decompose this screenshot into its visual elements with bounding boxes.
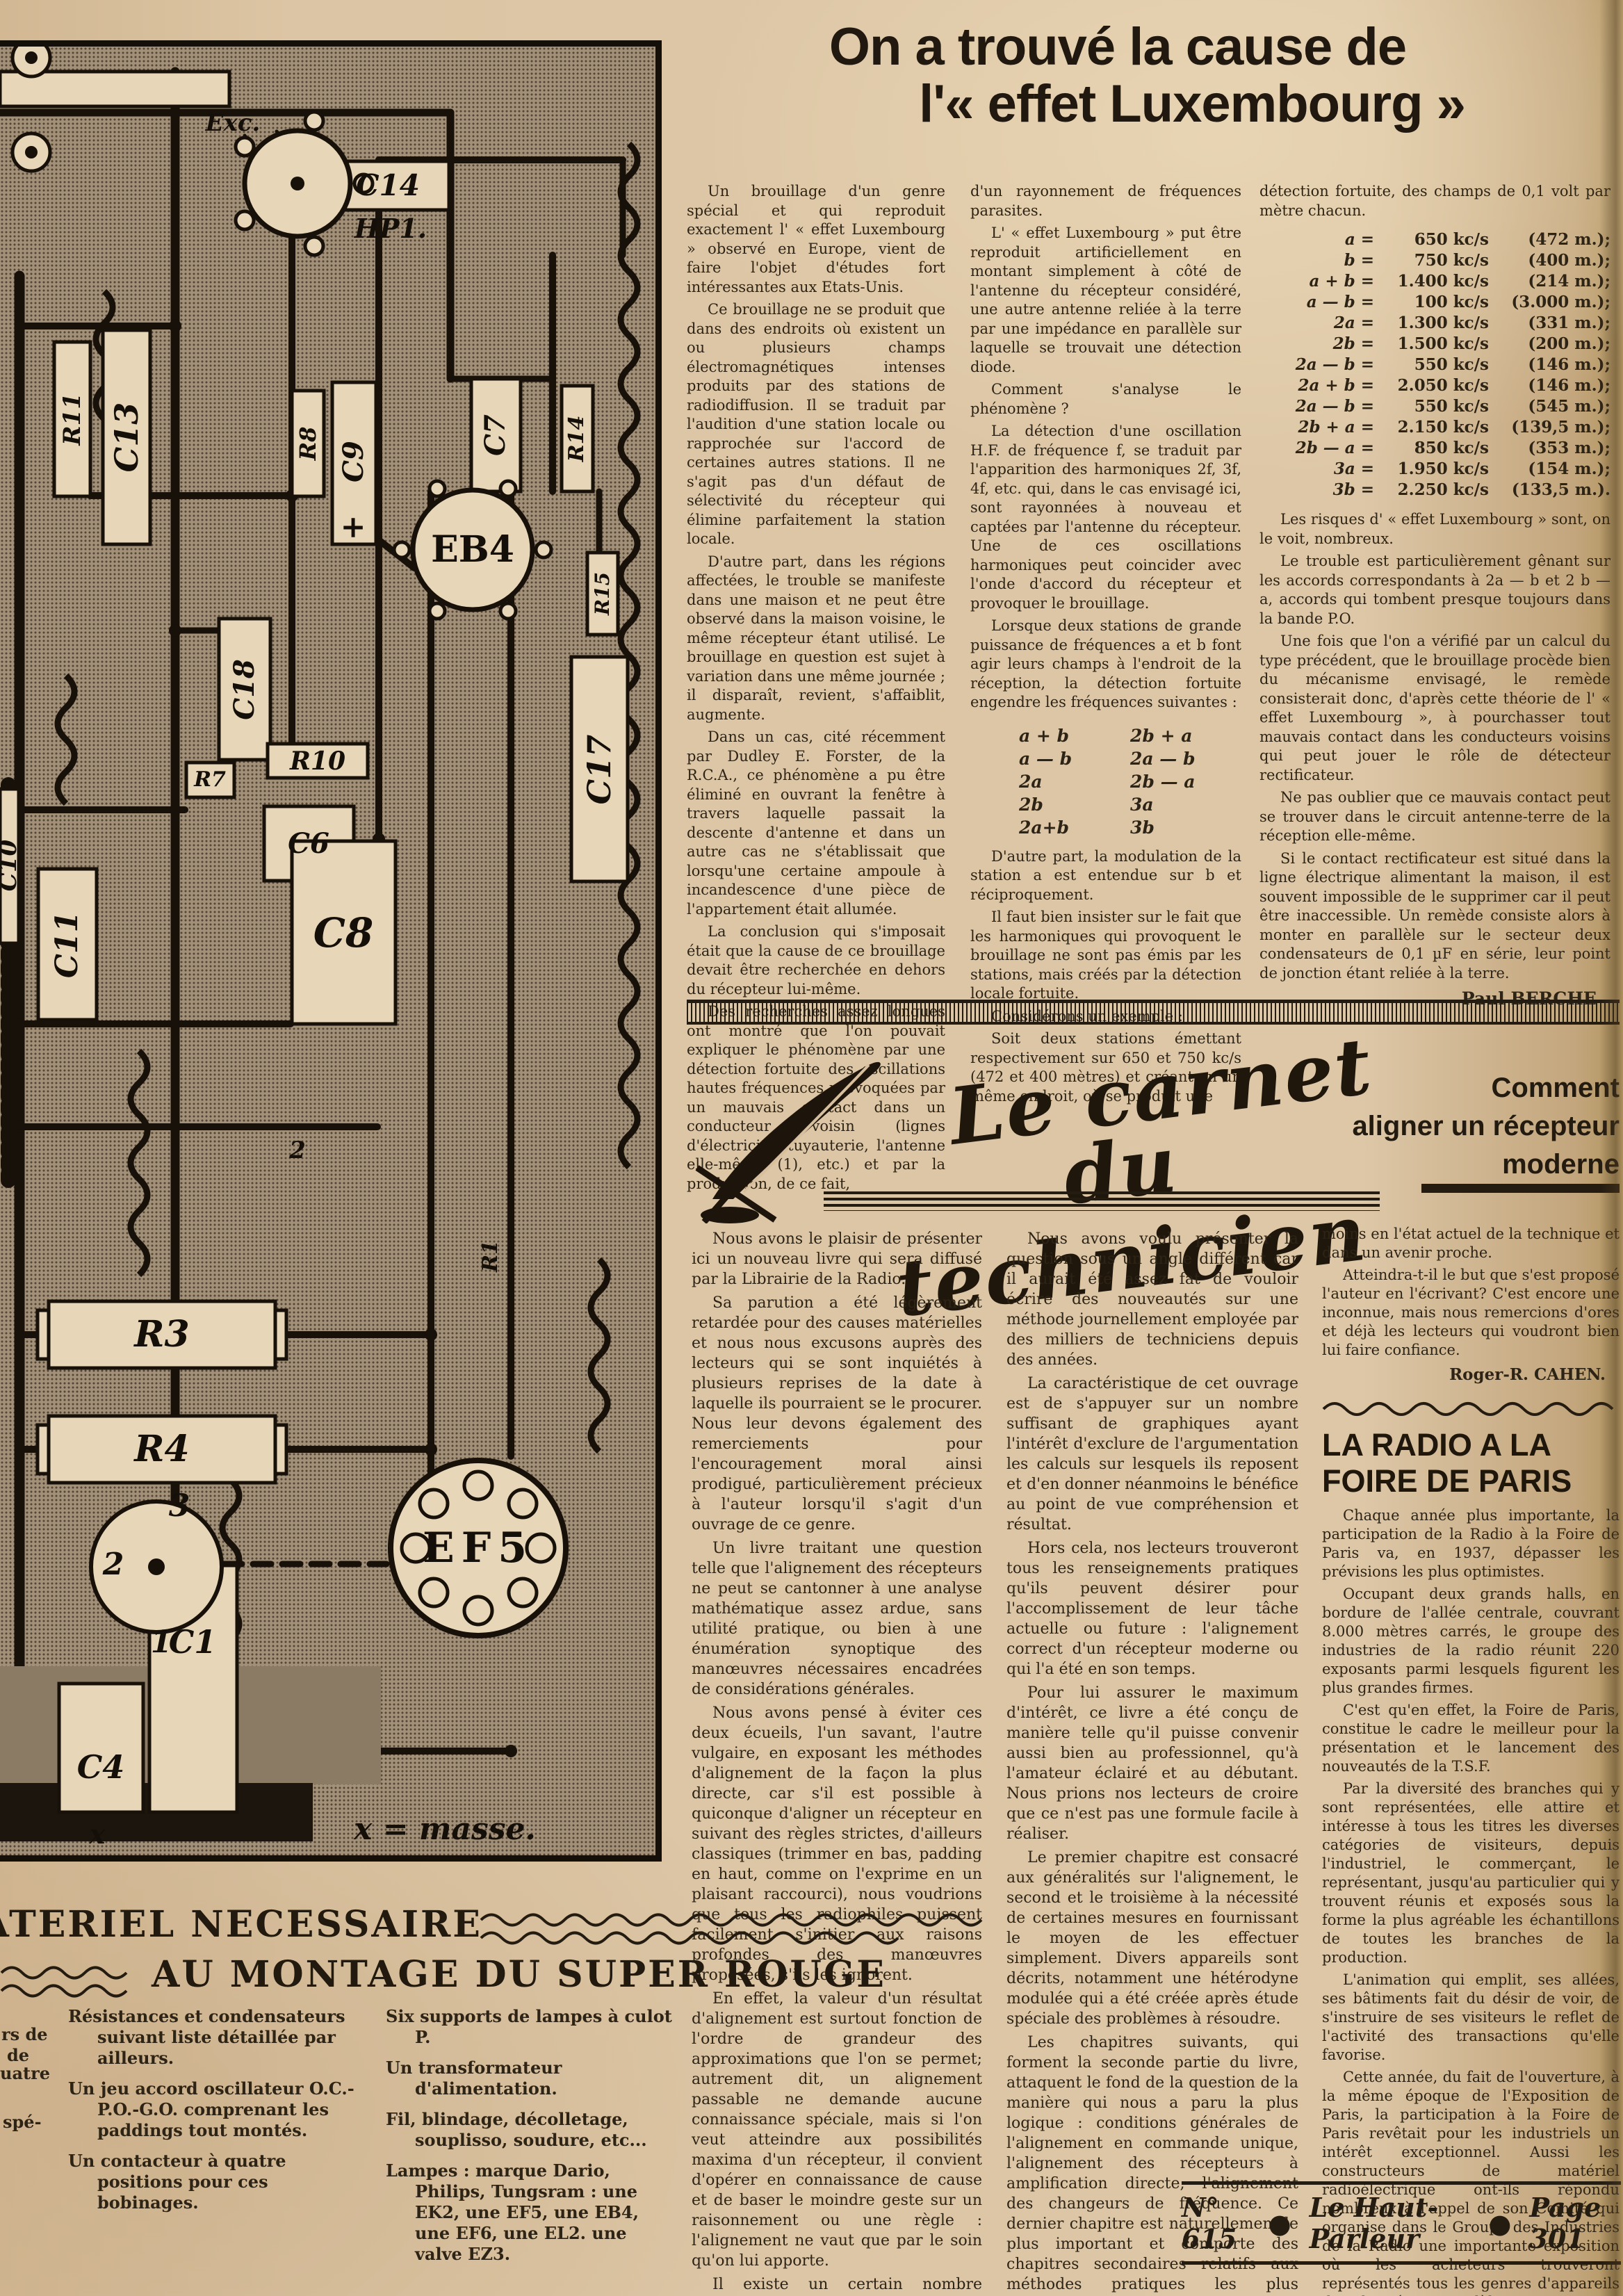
frequency-meters: (3.000 m.);	[1489, 292, 1610, 313]
subtitle-bar	[1421, 1184, 1620, 1193]
frequency-lhs: 2b + a =	[1270, 417, 1374, 438]
frequency-meters: (472 m.);	[1489, 229, 1610, 250]
materiel-item: Fil, blindage, décolletage, souplisso, s…	[386, 2109, 672, 2151]
frequency-value: 850 kc/s	[1374, 438, 1489, 459]
frequency-value: 1.300 kc/s	[1374, 313, 1489, 334]
label-r15: R15	[593, 572, 612, 615]
label-r11: R11	[60, 393, 84, 446]
issue-number: N° 615	[1182, 2192, 1250, 2254]
margin-fragment: spé-	[3, 2112, 42, 2132]
label-c6: C6	[288, 830, 329, 858]
frequency-row: 2a = 1.300 kc/s (331 m.);	[1259, 313, 1610, 334]
label-c13: C13	[111, 402, 142, 473]
frequency-lhs: a =	[1270, 229, 1374, 250]
label-c14: C14	[356, 171, 420, 200]
frequency-meters: (545 m.);	[1489, 396, 1610, 417]
formula: 2b — a	[1130, 770, 1241, 793]
label-c9: C9	[340, 441, 368, 482]
diagram-caption: x = masse.	[354, 1814, 536, 1845]
label-r4: R4	[134, 1431, 189, 1467]
lux-column-3-top: détection fortuite, des champs de 0,1 vo…	[1259, 182, 1610, 220]
paragraph: Ce brouillage ne se produit que dans des…	[687, 300, 945, 549]
paragraph: Le trouble est particulièrement gênant s…	[1259, 552, 1610, 628]
wavy-divider	[480, 1910, 1004, 1946]
subtitle-line: Comment	[1324, 1069, 1620, 1107]
frequency-meters: (146 m.);	[1489, 375, 1610, 396]
label-c11: C11	[52, 911, 83, 978]
label-c18: C18	[231, 659, 259, 720]
label-eb4: EB4	[431, 532, 514, 568]
bullet-icon: ●	[1488, 2208, 1511, 2239]
label-r10: R10	[290, 749, 345, 774]
newspaper-page: Exc. C14 HP1. R11 C13 R8 C9 + C7 R14 EB4…	[0, 0, 1623, 2296]
frequency-row: 3b = 2.250 kc/s (133,5 m.).	[1259, 480, 1610, 500]
frequency-row: 2b + a = 2.150 kc/s (139,5 m.);	[1259, 417, 1610, 438]
formula: 3a	[1130, 793, 1241, 816]
frequency-lhs: 3b =	[1270, 480, 1374, 500]
paragraph: Hors cela, nos lecteurs trouveront tous …	[1006, 1538, 1298, 1679]
paragraph: Nous avons le plaisir de présenter ici u…	[692, 1229, 982, 1289]
frequency-lhs: a + b =	[1270, 271, 1374, 292]
lux-column-2: d'un rayonnement de fréquences parasites…	[970, 182, 1241, 1109]
formula: 2b	[1019, 793, 1130, 816]
frequency-lhs: 2a =	[1270, 313, 1374, 334]
bullet-icon: ●	[1268, 2208, 1291, 2239]
frequency-meters: (214 m.);	[1489, 271, 1610, 292]
carnet-column-2: Nous avons voulu présenter la question s…	[1006, 1229, 1298, 2296]
label-ef5: EF5	[423, 1527, 534, 1569]
frequency-row: a = 650 kc/s (472 m.);	[1259, 229, 1610, 250]
frequency-lhs: 2a — b =	[1270, 396, 1374, 417]
frequency-value: 550 kc/s	[1374, 355, 1489, 375]
section-divider	[687, 1000, 1620, 1025]
paragraph: Occupant deux grands halls, en bordure d…	[1322, 1585, 1620, 1697]
frequency-lhs: a — b =	[1270, 292, 1374, 313]
lux-headline-line1: On a trouvé la cause de	[687, 19, 1549, 75]
frequency-row: 2b = 1.500 kc/s (200 m.);	[1259, 334, 1610, 355]
label-plus: +	[341, 512, 366, 543]
frequency-value: 1.950 kc/s	[1374, 459, 1489, 480]
carnet-signature: Roger-R. CAHEN.	[1322, 1365, 1620, 1384]
formula: 3b	[1130, 816, 1241, 839]
frequency-meters: (353 m.);	[1489, 438, 1610, 459]
materiel-item: Lampes : marque Dario, Philips, Tungsram…	[386, 2160, 672, 2265]
paragraph: Un livre traitant une question telle que…	[692, 1538, 982, 1700]
formula: 2a+b	[1019, 816, 1130, 839]
materiel-item: Un jeu accord oscillateur O.C.-P.O.-G.O.…	[68, 2078, 366, 2141]
wiring-diagram: Exc. C14 HP1. R11 C13 R8 C9 + C7 R14 EB4…	[0, 40, 662, 1862]
lux-headline-line2: l'« effet Luxembourg »	[761, 76, 1623, 132]
label-pin2: 2	[103, 1549, 124, 1580]
frequency-lhs: 2a + b =	[1270, 375, 1374, 396]
frequency-value: 550 kc/s	[1374, 396, 1489, 417]
frequency-row: b = 750 kc/s (400 m.);	[1259, 250, 1610, 271]
materiel-title-line1: MATERIEL NECESSAIRE	[0, 1903, 482, 1946]
paragraph: Le premier chapitre est consacré aux gén…	[1006, 1848, 1298, 2029]
foire-body: Chaque année plus importante, la partici…	[1322, 1506, 1620, 2296]
paragraph: d'un rayonnement de fréquences parasites…	[970, 182, 1241, 220]
label-c10: C10	[0, 840, 20, 891]
lux-column-3: détection fortuite, des champs de 0,1 vo…	[1259, 182, 1610, 1009]
paragraph: Chaque année plus importante, la partici…	[1322, 1506, 1620, 1581]
frequency-meters: (154 m.);	[1489, 459, 1610, 480]
label-c17: C17	[583, 735, 615, 805]
page-edge-shadow	[1599, 0, 1623, 2296]
carnet-subtitle: Commentaligner un récepteurmoderne	[1324, 1069, 1620, 1184]
subtitle-line: aligner un récepteur	[1324, 1107, 1620, 1146]
magazine-name: Le Haut-Parleur	[1310, 2192, 1471, 2254]
formula: 2b + a	[1130, 724, 1241, 747]
frequency-row: a + b = 1.400 kc/s (214 m.);	[1259, 271, 1610, 292]
materiel-right-column: Six supports de lampes à culot P.Un tran…	[386, 2006, 672, 2274]
carnet-striped-bar	[824, 1191, 1380, 1211]
page-footer: N° 615 ● Le Haut-Parleur ● Page 301	[1182, 2181, 1621, 2265]
margin-fragment: rs de	[1, 2024, 48, 2044]
paragraph: Nous avons voulu présenter la question s…	[1006, 1229, 1298, 1370]
frequency-value: 2.050 kc/s	[1374, 375, 1489, 396]
wavy-divider	[0, 1963, 142, 1998]
paragraph: Dans un cas, cité récemment par Dudley E…	[687, 728, 945, 919]
paragraph: Une fois que l'on a vérifié par un calcu…	[1259, 632, 1610, 785]
materiel-item: Un contacteur à quatre positions pour ce…	[68, 2151, 366, 2213]
frequency-row: 2a + b = 2.050 kc/s (146 m.);	[1259, 375, 1610, 396]
paragraph: La détection d'une oscillation H.F. de f…	[970, 422, 1241, 613]
formula-list-left: a + ba — b2a2b2a+b	[1019, 724, 1130, 839]
margin-fragment: uatre	[0, 2063, 50, 2083]
carnet-column-3: moins en l'état actuel de la technique e…	[1322, 1225, 1620, 1360]
frequency-lhs: 3a =	[1270, 459, 1374, 480]
label-c8: C8	[313, 913, 374, 953]
paragraph: Il existe un certain nombre d'ouvrages t…	[692, 2274, 982, 2296]
paragraph: Comment s'analyse le phénomène ?	[970, 380, 1241, 418]
margin-fragment: de	[7, 2045, 29, 2065]
frequency-row: 3a = 1.950 kc/s (154 m.);	[1259, 459, 1610, 480]
frequency-meters: (146 m.);	[1489, 355, 1610, 375]
lux-column-3-body: Les risques d' « effet Luxembourg » sont…	[1259, 510, 1610, 983]
paragraph: moins en l'état actuel de la technique e…	[1322, 1225, 1620, 1262]
frequency-lhs: b =	[1270, 250, 1374, 271]
label-hp1: HP1.	[354, 215, 427, 242]
paragraph: La conclusion qui s'imposait était que l…	[687, 922, 945, 999]
formula: 2a	[1019, 770, 1130, 793]
frequency-meters: (133,5 m.).	[1489, 480, 1610, 500]
paragraph: Lorsque deux stations de grande puissanc…	[970, 617, 1241, 713]
paragraph: Les risques d' « effet Luxembourg » sont…	[1259, 510, 1610, 548]
label-2: 2	[289, 1139, 306, 1162]
paragraph: C'est qu'en effet, la Foire de Paris, co…	[1322, 1701, 1620, 1776]
label-exc: Exc.	[206, 111, 261, 135]
subtitle-line: moderne	[1324, 1146, 1620, 1184]
lux-column-1: Un brouillage d'un genre spécial et qui …	[687, 182, 945, 1197]
label-x: x	[90, 1821, 106, 1848]
paragraph: Ne pas oublier que ce mauvais contact pe…	[1259, 788, 1610, 846]
paragraph: détection fortuite, des champs de 0,1 vo…	[1259, 182, 1610, 220]
frequency-value: 1.400 kc/s	[1374, 271, 1489, 292]
paragraph: Si le contact rectificateur est situé da…	[1259, 849, 1610, 984]
carnet-column-1: Nous avons le plaisir de présenter ici u…	[692, 1229, 982, 2296]
frequency-meters: (400 m.);	[1489, 250, 1610, 271]
frequency-row: 2b — a = 850 kc/s (353 m.);	[1259, 438, 1610, 459]
lux-column-2-top: d'un rayonnement de fréquences parasites…	[970, 182, 1241, 713]
frequency-value: 2.250 kc/s	[1374, 480, 1489, 500]
paragraph: D'autre part, la modulation de la statio…	[970, 847, 1241, 905]
frequency-lhs: 2b — a =	[1270, 438, 1374, 459]
frequency-meters: (331 m.);	[1489, 313, 1610, 334]
frequency-row: 2a — b = 550 kc/s (545 m.);	[1259, 396, 1610, 417]
label-r8: R8	[297, 427, 319, 461]
paragraph: L' « effet Luxembourg » put être reprodu…	[970, 224, 1241, 377]
paragraph: Un brouillage d'un genre spécial et qui …	[687, 182, 945, 297]
paragraph: D'autre part, dans les régions affectées…	[687, 553, 945, 725]
materiel-item: Six supports de lampes à culot P.	[386, 2006, 672, 2048]
label-r1: R1	[480, 1240, 501, 1272]
frequency-value: 1.500 kc/s	[1374, 334, 1489, 355]
label-r7: R7	[194, 770, 226, 790]
frequency-value: 650 kc/s	[1374, 229, 1489, 250]
frequency-meters: (139,5 m.);	[1489, 417, 1610, 438]
materiel-item: Un transformateur d'alimentation.	[386, 2058, 672, 2099]
harmonic-formulas: a + ba — b2a2b2a+b 2b + a2a — b2b — a3a3…	[970, 716, 1241, 847]
paragraph: Pour lui assurer le maximum d'intérêt, c…	[1006, 1683, 1298, 1844]
materiel-title-line2: AU MONTAGE DU SUPER ROUGE	[152, 1953, 886, 1996]
formula: a + b	[1019, 724, 1130, 747]
paragraph: Par la diversité des branches qui y sont…	[1322, 1780, 1620, 1967]
wavy-divider	[1322, 1397, 1620, 1417]
paragraph: Il faut bien insister sur le fait que le…	[970, 908, 1241, 1004]
frequency-lhs: 2a — b =	[1270, 355, 1374, 375]
label-r3: R3	[134, 1317, 189, 1353]
frequency-row: 2a — b = 550 kc/s (146 m.);	[1259, 355, 1610, 375]
paragraph: La caractéristique de cet ouvrage est de…	[1006, 1374, 1298, 1535]
frequency-row: a — b = 100 kc/s (3.000 m.);	[1259, 292, 1610, 313]
frequency-value: 2.150 kc/s	[1374, 417, 1489, 438]
materiel-item: Résistances et condensateurs suivant lis…	[68, 2006, 366, 2069]
materiel-left-column: Résistances et condensateurs suivant lis…	[68, 2006, 366, 2223]
frequency-table: a = 650 kc/s (472 m.); b = 750 kc/s (400…	[1259, 224, 1610, 510]
frequency-lhs: 2b =	[1270, 334, 1374, 355]
formula-list-right: 2b + a2a — b2b — a3a3b	[1130, 724, 1241, 839]
formula: 2a — b	[1130, 747, 1241, 770]
label-c7: C7	[482, 414, 509, 456]
frequency-value: 100 kc/s	[1374, 292, 1489, 313]
paragraph: En effet, la valeur d'un résultat d'alig…	[692, 1989, 982, 2271]
paragraph: Sa parution a été légèrement retardée po…	[692, 1293, 982, 1535]
frequency-value: 750 kc/s	[1374, 250, 1489, 271]
paragraph: Atteindra-t-il le but que s'est proposé …	[1322, 1266, 1620, 1360]
frequency-meters: (200 m.);	[1489, 334, 1610, 355]
wiring-diagram-graphics	[0, 47, 662, 1868]
foire-title: LA RADIO A LA FOIRE DE PARIS	[1322, 1427, 1620, 1499]
label-c1: C1	[169, 1626, 217, 1658]
footer-rule-bottom	[1182, 2261, 1621, 2265]
label-pin3: 3	[169, 1491, 190, 1522]
label-c4: C4	[77, 1751, 125, 1783]
formula: a — b	[1019, 747, 1130, 770]
paragraph: L'animation qui emplit, ses allées, ses …	[1322, 1971, 1620, 2065]
label-r14: R14	[566, 416, 587, 462]
right-column: moins en l'état actuel de la technique e…	[1322, 1225, 1620, 2296]
